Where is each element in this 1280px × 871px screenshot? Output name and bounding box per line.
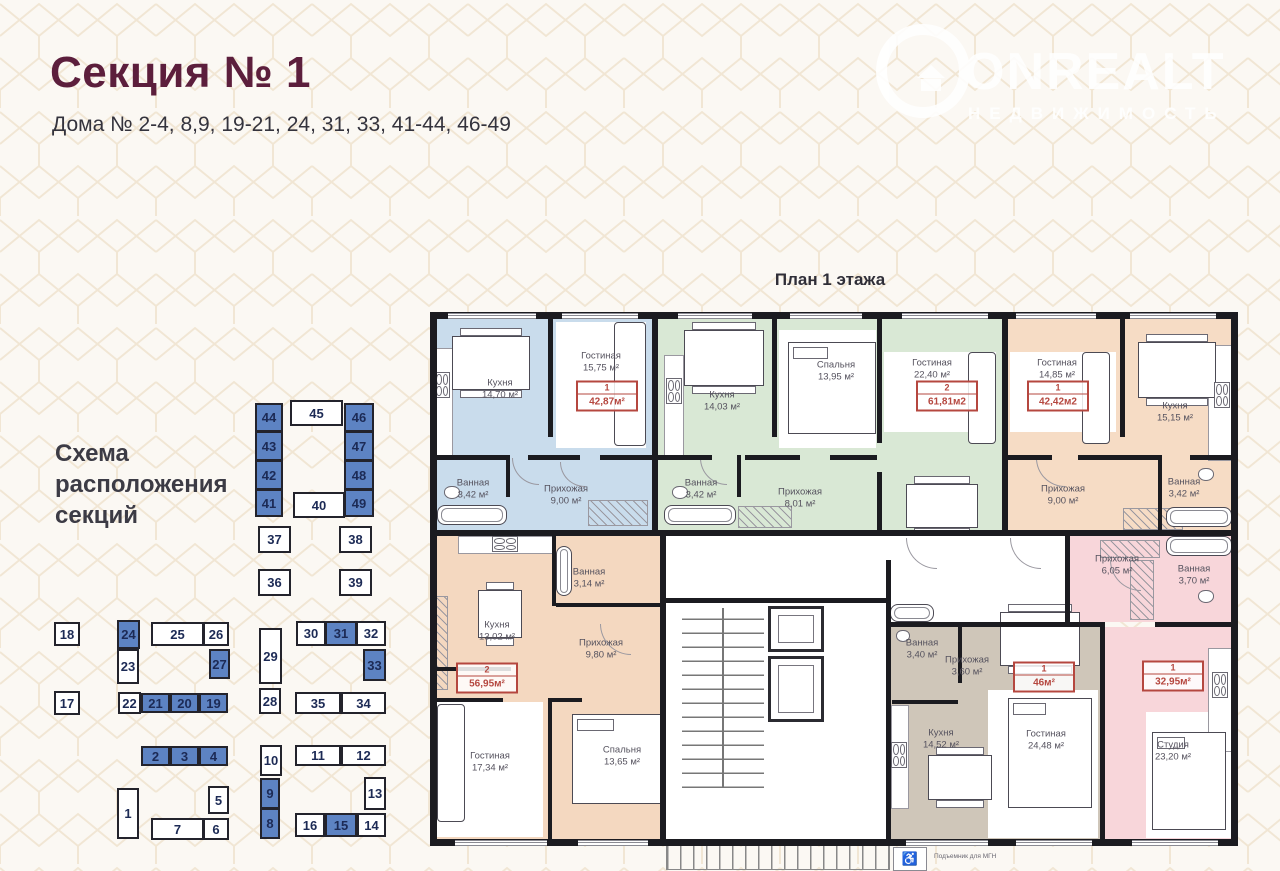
wall (830, 455, 877, 460)
wall (737, 455, 741, 497)
room-name: Прихожая (579, 638, 623, 650)
room-name: Спальня (817, 360, 855, 372)
wall (556, 603, 660, 607)
chair (486, 582, 514, 590)
room-label: Прихожая8,01 м² (778, 487, 822, 512)
scheme-box-35: 35 (295, 692, 341, 714)
scheme-box-25: 25 (151, 622, 204, 646)
dining-table (906, 484, 978, 528)
wall (652, 319, 658, 530)
wall (1100, 622, 1105, 839)
scheme-box-29: 29 (259, 628, 282, 684)
room-area: 9,80 м² (579, 650, 623, 662)
scheme-box-49: 49 (344, 489, 374, 517)
room-label: Ванная3,70 м² (1178, 564, 1211, 589)
watermark: ONREALT НЕДВИЖИМОСТЬ (868, 16, 1248, 128)
dining-table (1138, 342, 1216, 398)
room-area: 13,65 м² (603, 757, 641, 769)
wall (660, 598, 890, 603)
chair (1008, 604, 1072, 612)
window-glass-line (1130, 315, 1216, 316)
unit-badge: 142,42м2 (1027, 381, 1089, 412)
wall (528, 455, 580, 460)
scheme-box-26: 26 (203, 622, 229, 646)
scheme-box-33: 33 (363, 649, 386, 681)
wall (1155, 622, 1235, 627)
wardrobe-hatch (588, 500, 648, 526)
scheme-box-40: 40 (293, 492, 345, 518)
room-name: Ванная (906, 638, 939, 650)
unit-number: 1 (1029, 383, 1087, 395)
wall (1190, 455, 1237, 460)
scheme-box-23: 23 (117, 649, 139, 684)
unit-total-area: 32,95м² (1144, 675, 1202, 690)
scheme-box-18: 18 (54, 622, 80, 646)
stove (1214, 382, 1230, 408)
room-name: Гостиная (912, 358, 952, 370)
wall (877, 319, 882, 443)
room-label: Ванная3,42 м² (1168, 477, 1201, 502)
kitchen-counter (664, 355, 684, 459)
scheme-box-4: 4 (199, 746, 228, 766)
elevator-cab (778, 615, 814, 643)
wall (433, 455, 506, 460)
wall (877, 472, 882, 530)
room-label: Кухня14,70 м² (482, 378, 518, 403)
room-name: Гостиная (581, 351, 621, 363)
chair (936, 800, 984, 808)
window-glass-line (906, 842, 988, 843)
scheme-box-38: 38 (339, 526, 372, 553)
scheme-box-21: 21 (141, 693, 170, 713)
sofa (437, 704, 465, 822)
chair (914, 476, 970, 484)
stair-divider (722, 608, 724, 788)
unit-badge: 142,87м² (576, 381, 638, 412)
brand-logo-text: ONREALT (964, 42, 1225, 102)
scheme-box-44: 44 (255, 403, 283, 432)
unit-badge: 256,95м² (456, 663, 518, 694)
scheme-box-31: 31 (325, 621, 357, 646)
wall (892, 700, 958, 704)
dining-table (684, 330, 764, 386)
scheme-box-2: 2 (141, 746, 170, 766)
dining-table (928, 755, 992, 800)
house-roof-icon (917, 65, 945, 78)
bathtub (556, 546, 572, 596)
room-area: 24,48 м² (1026, 741, 1066, 753)
scheme-box-5: 5 (208, 786, 229, 814)
room-name: Ванная (1168, 477, 1201, 489)
window-glass-line (790, 315, 862, 316)
unit-total-area: 61,81м2 (918, 395, 976, 410)
room-area: 14,70 м² (482, 390, 518, 402)
scheme-box-9: 9 (260, 778, 280, 809)
window-glass-line (1132, 842, 1218, 843)
room-area: 15,75 м² (581, 363, 621, 375)
room-label: Ванная3,40 м² (906, 638, 939, 663)
room-label: Прихожая9,80 м² (579, 638, 623, 663)
window-glass-line (1016, 315, 1096, 316)
room-name: Студия (1155, 740, 1191, 752)
wall (552, 698, 582, 702)
window-glass-line (562, 315, 638, 316)
toilet (1198, 468, 1214, 481)
scheme-box-32: 32 (356, 621, 386, 646)
room-label: Ванная3,42 м² (685, 478, 718, 503)
wall (1120, 319, 1125, 437)
scheme-box-42: 42 (255, 460, 283, 490)
wall (1120, 455, 1160, 460)
room-name: Ванная (1178, 564, 1211, 576)
scheme-box-39: 39 (339, 569, 372, 596)
wall (600, 455, 652, 460)
elevator-cab (778, 665, 814, 713)
room-name: Ванная (573, 567, 606, 579)
accessibility-note: Подъемник для МГН (934, 853, 1008, 861)
room-name: Прихожая (778, 487, 822, 499)
stove (492, 536, 518, 552)
scheme-box-24: 24 (117, 620, 140, 649)
scheme-box-34: 34 (341, 692, 386, 714)
room-label: Гостиная14,85 м² (1037, 358, 1077, 383)
room-label: Прихожая6,05 м² (1095, 554, 1139, 579)
room-area: 6,05 м² (1095, 566, 1139, 578)
room-area: 3,60 м² (945, 667, 989, 679)
scheme-label: Схема расположения секций (55, 438, 275, 532)
wall (1065, 536, 1070, 622)
bathtub (437, 505, 507, 525)
scheme-box-10: 10 (260, 745, 282, 776)
scheme-box-8: 8 (260, 808, 280, 839)
wall (552, 536, 556, 606)
unit-total-area: 56,95м² (458, 677, 516, 692)
room-name: Прихожая (945, 655, 989, 667)
room-label: Гостиная15,75 м² (581, 351, 621, 376)
elevator (768, 606, 824, 652)
wall (548, 319, 553, 437)
scheme-box-1: 1 (117, 788, 139, 839)
room-label: Кухня14,03 м² (704, 390, 740, 415)
wall (548, 698, 552, 839)
room-name: Гостиная (1037, 358, 1077, 370)
wall (1231, 312, 1238, 846)
scheme-box-13: 13 (364, 777, 386, 810)
window-glass-line (578, 842, 648, 843)
scheme-box-12: 12 (341, 745, 386, 766)
pillow (577, 719, 614, 731)
window-glass-line (448, 315, 536, 316)
room-area: 3,42 м² (685, 490, 718, 502)
bathtub (1166, 507, 1232, 527)
room-area: 8,01 м² (778, 499, 822, 511)
page: Секция № 1 Дома № 2-4, 8,9, 19-21, 24, 3… (0, 0, 1280, 871)
scheme-box-45: 45 (290, 400, 343, 426)
scheme-box-28: 28 (259, 688, 281, 714)
room-name: Кухня (923, 728, 959, 740)
unit-number: 1 (1015, 664, 1073, 676)
house-in-circle-icon (876, 24, 970, 118)
room-label: Прихожая9,00 м² (1041, 484, 1085, 509)
unit-total-area: 42,42м2 (1029, 395, 1087, 410)
chair (460, 328, 522, 336)
stove (891, 742, 907, 768)
room-name: Прихожая (1095, 554, 1139, 566)
wall (1002, 455, 1052, 460)
elevator (768, 656, 824, 722)
room-area: 9,00 м² (544, 496, 588, 508)
wall (433, 698, 503, 702)
window-glass-line (455, 842, 547, 843)
room-name: Кухня (482, 378, 518, 390)
room-area: 9,00 м² (1041, 496, 1085, 508)
scheme-box-20: 20 (170, 693, 199, 713)
room-label: Кухня13,02 м² (479, 620, 515, 645)
scheme-box-27: 27 (209, 649, 230, 679)
toilet (1198, 590, 1214, 603)
scheme-box-30: 30 (296, 621, 326, 646)
wall (1078, 455, 1120, 460)
scheme-box-16: 16 (295, 813, 325, 837)
stove (1212, 672, 1228, 698)
room-label: Гостиная22,40 м² (912, 358, 952, 383)
bathtub (1166, 536, 1232, 556)
room-name: Прихожая (544, 484, 588, 496)
unit-number: 2 (458, 665, 516, 677)
chair (1146, 334, 1208, 342)
room-area: 3,14 м² (573, 579, 606, 591)
wall (1002, 319, 1008, 530)
room-label: Прихожая3,60 м² (945, 655, 989, 680)
page-title: Секция № 1 (50, 48, 311, 98)
wall (506, 455, 510, 497)
scheme-box-6: 6 (203, 818, 229, 840)
scheme-box-43: 43 (255, 431, 283, 461)
room-area: 13,95 м² (817, 372, 855, 384)
bathtub (890, 604, 934, 622)
room-label: Ванная3,42 м² (457, 478, 490, 503)
wall (660, 536, 666, 839)
unit-badge: 146м² (1013, 662, 1075, 693)
room-name: Спальня (603, 745, 641, 757)
room-name: Ванная (457, 478, 490, 490)
unit-badge: 261,81м2 (916, 381, 978, 412)
pillow (793, 347, 828, 359)
scheme-box-48: 48 (344, 460, 374, 490)
unit-badge: 132,95м² (1142, 661, 1204, 692)
wheelchair-lift-icon: ♿ (893, 847, 927, 871)
unit-total-area: 46м² (1015, 676, 1073, 691)
scheme-box-19: 19 (199, 693, 228, 713)
scheme-box-37: 37 (258, 526, 291, 553)
stove (666, 378, 682, 404)
window-glass-line (1016, 842, 1092, 843)
room-label: Прихожая9,00 м² (544, 484, 588, 509)
pillow (1013, 703, 1046, 715)
room-label: Кухня14,52 м² (923, 728, 959, 753)
houses-subtitle: Дома № 2-4, 8,9, 19-21, 24, 31, 33, 41-4… (52, 113, 511, 137)
room-name: Ванная (685, 478, 718, 490)
wall (1067, 622, 1105, 627)
scheme-box-7: 7 (151, 818, 204, 840)
room-area: 17,34 м² (470, 763, 510, 775)
room-label: Студия23,20 м² (1155, 740, 1191, 765)
scheme-box-22: 22 (118, 692, 141, 714)
room-name: Прихожая (1041, 484, 1085, 496)
bathtub (664, 505, 736, 525)
room-label: Гостиная17,34 м² (470, 751, 510, 776)
plan-title: План 1 этажа (720, 270, 940, 290)
scheme-box-47: 47 (344, 431, 374, 461)
unit-number: 1 (1144, 663, 1202, 675)
house-body-icon (921, 79, 941, 91)
room-area: 15,15 м² (1157, 413, 1193, 425)
room-area: 3,42 м² (457, 490, 490, 502)
wall (1158, 455, 1162, 532)
window-glass-line (902, 315, 988, 316)
room-label: Ванная3,14 м² (573, 567, 606, 592)
room-area: 3,70 м² (1178, 576, 1211, 588)
scheme-box-11: 11 (295, 745, 341, 766)
unit-total-area: 42,87м² (578, 395, 636, 410)
scheme-box-15: 15 (325, 813, 357, 837)
scheme-box-3: 3 (170, 746, 199, 766)
room-label: Кухня15,15 м² (1157, 401, 1193, 426)
room-label: Спальня13,65 м² (603, 745, 641, 770)
room-area: 3,42 м² (1168, 489, 1201, 501)
scheme-box-17: 17 (54, 691, 80, 715)
room-area: 23,20 м² (1155, 752, 1191, 764)
room-area: 14,52 м² (923, 740, 959, 752)
exterior-stairs (666, 846, 890, 870)
unit-number: 1 (578, 383, 636, 395)
room-label: Спальня13,95 м² (817, 360, 855, 385)
room-area: 3,40 м² (906, 650, 939, 662)
room-label: Гостиная24,48 м² (1026, 729, 1066, 754)
chair (692, 322, 756, 330)
scheme-box-46: 46 (344, 403, 374, 432)
brand-tagline: НЕДВИЖИМОСТЬ (968, 104, 1226, 124)
room-name: Кухня (1157, 401, 1193, 413)
room-name: Кухня (704, 390, 740, 402)
room-name: Гостиная (470, 751, 510, 763)
wall (745, 455, 800, 460)
scheme-box-14: 14 (357, 813, 386, 837)
room-name: Гостиная (1026, 729, 1066, 741)
room-name: Кухня (479, 620, 515, 632)
wall (430, 839, 1238, 846)
unit-number: 2 (918, 383, 976, 395)
wall (772, 319, 777, 437)
wall (652, 455, 712, 460)
room-area: 13,02 м² (479, 632, 515, 644)
room-area: 14,03 м² (704, 402, 740, 414)
window-glass-line (678, 315, 752, 316)
wall (430, 312, 437, 846)
scheme-box-41: 41 (255, 489, 283, 517)
scheme-box-36: 36 (258, 569, 291, 596)
